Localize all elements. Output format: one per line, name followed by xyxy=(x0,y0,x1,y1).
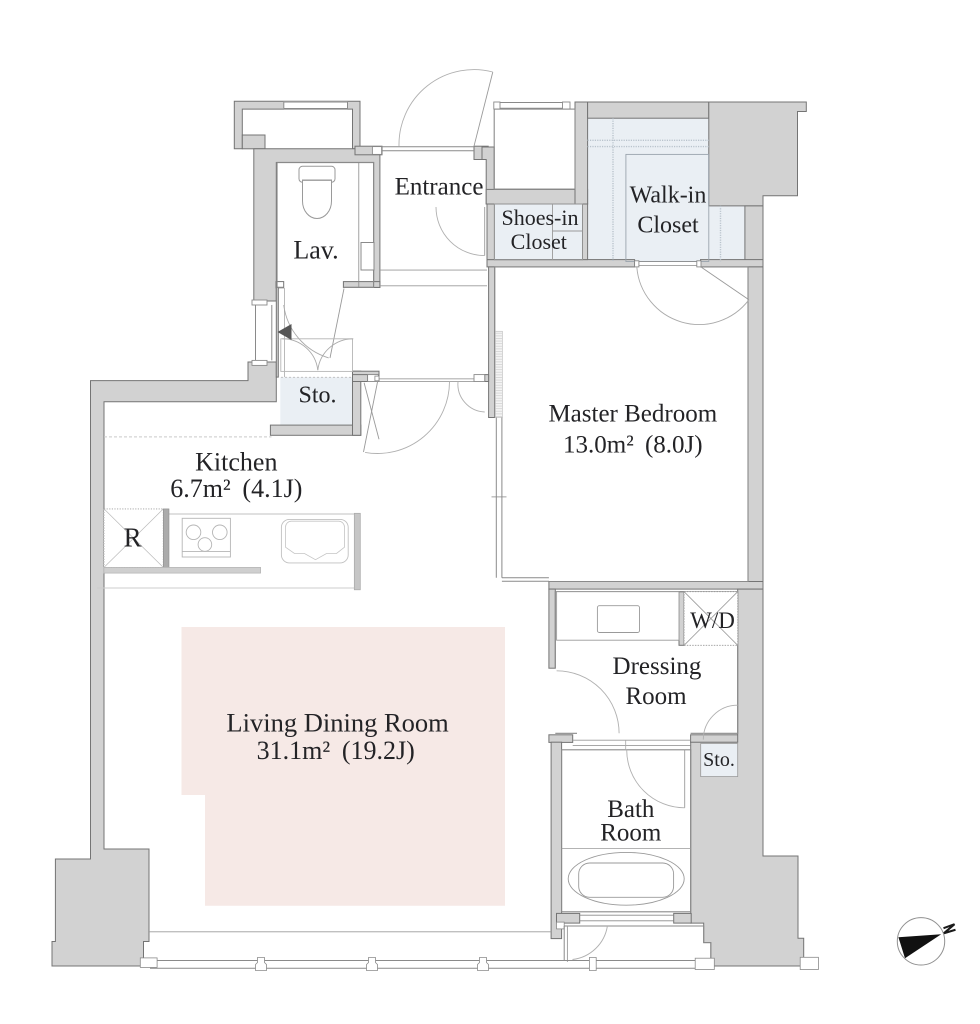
svg-text:Walk-in: Walk-in xyxy=(630,183,707,209)
svg-text:R: R xyxy=(124,523,142,553)
svg-text:Sto.: Sto. xyxy=(703,749,735,771)
svg-text:Shoes-in: Shoes-in xyxy=(502,205,579,230)
svg-text:Closet: Closet xyxy=(511,229,567,254)
svg-text:31.1m² (19.2J): 31.1m² (19.2J) xyxy=(257,736,415,765)
svg-text:13.0m² (8.0J): 13.0m² (8.0J) xyxy=(563,432,703,459)
svg-text:Lav.: Lav. xyxy=(293,236,338,265)
svg-text:Living Dining Room: Living Dining Room xyxy=(226,708,449,738)
svg-text:Kitchen: Kitchen xyxy=(195,448,277,477)
svg-text:Room: Room xyxy=(625,683,687,710)
svg-text:W/D: W/D xyxy=(690,608,735,633)
svg-text:Master Bedroom: Master Bedroom xyxy=(548,401,717,428)
svg-text:Entrance: Entrance xyxy=(395,174,484,201)
svg-text:6.7m² (4.1J): 6.7m² (4.1J) xyxy=(170,474,302,503)
svg-text:Sto.: Sto. xyxy=(298,383,336,409)
svg-text:Room: Room xyxy=(600,820,662,847)
svg-text:Dressing: Dressing xyxy=(613,653,702,680)
svg-text:Closet: Closet xyxy=(637,213,699,239)
